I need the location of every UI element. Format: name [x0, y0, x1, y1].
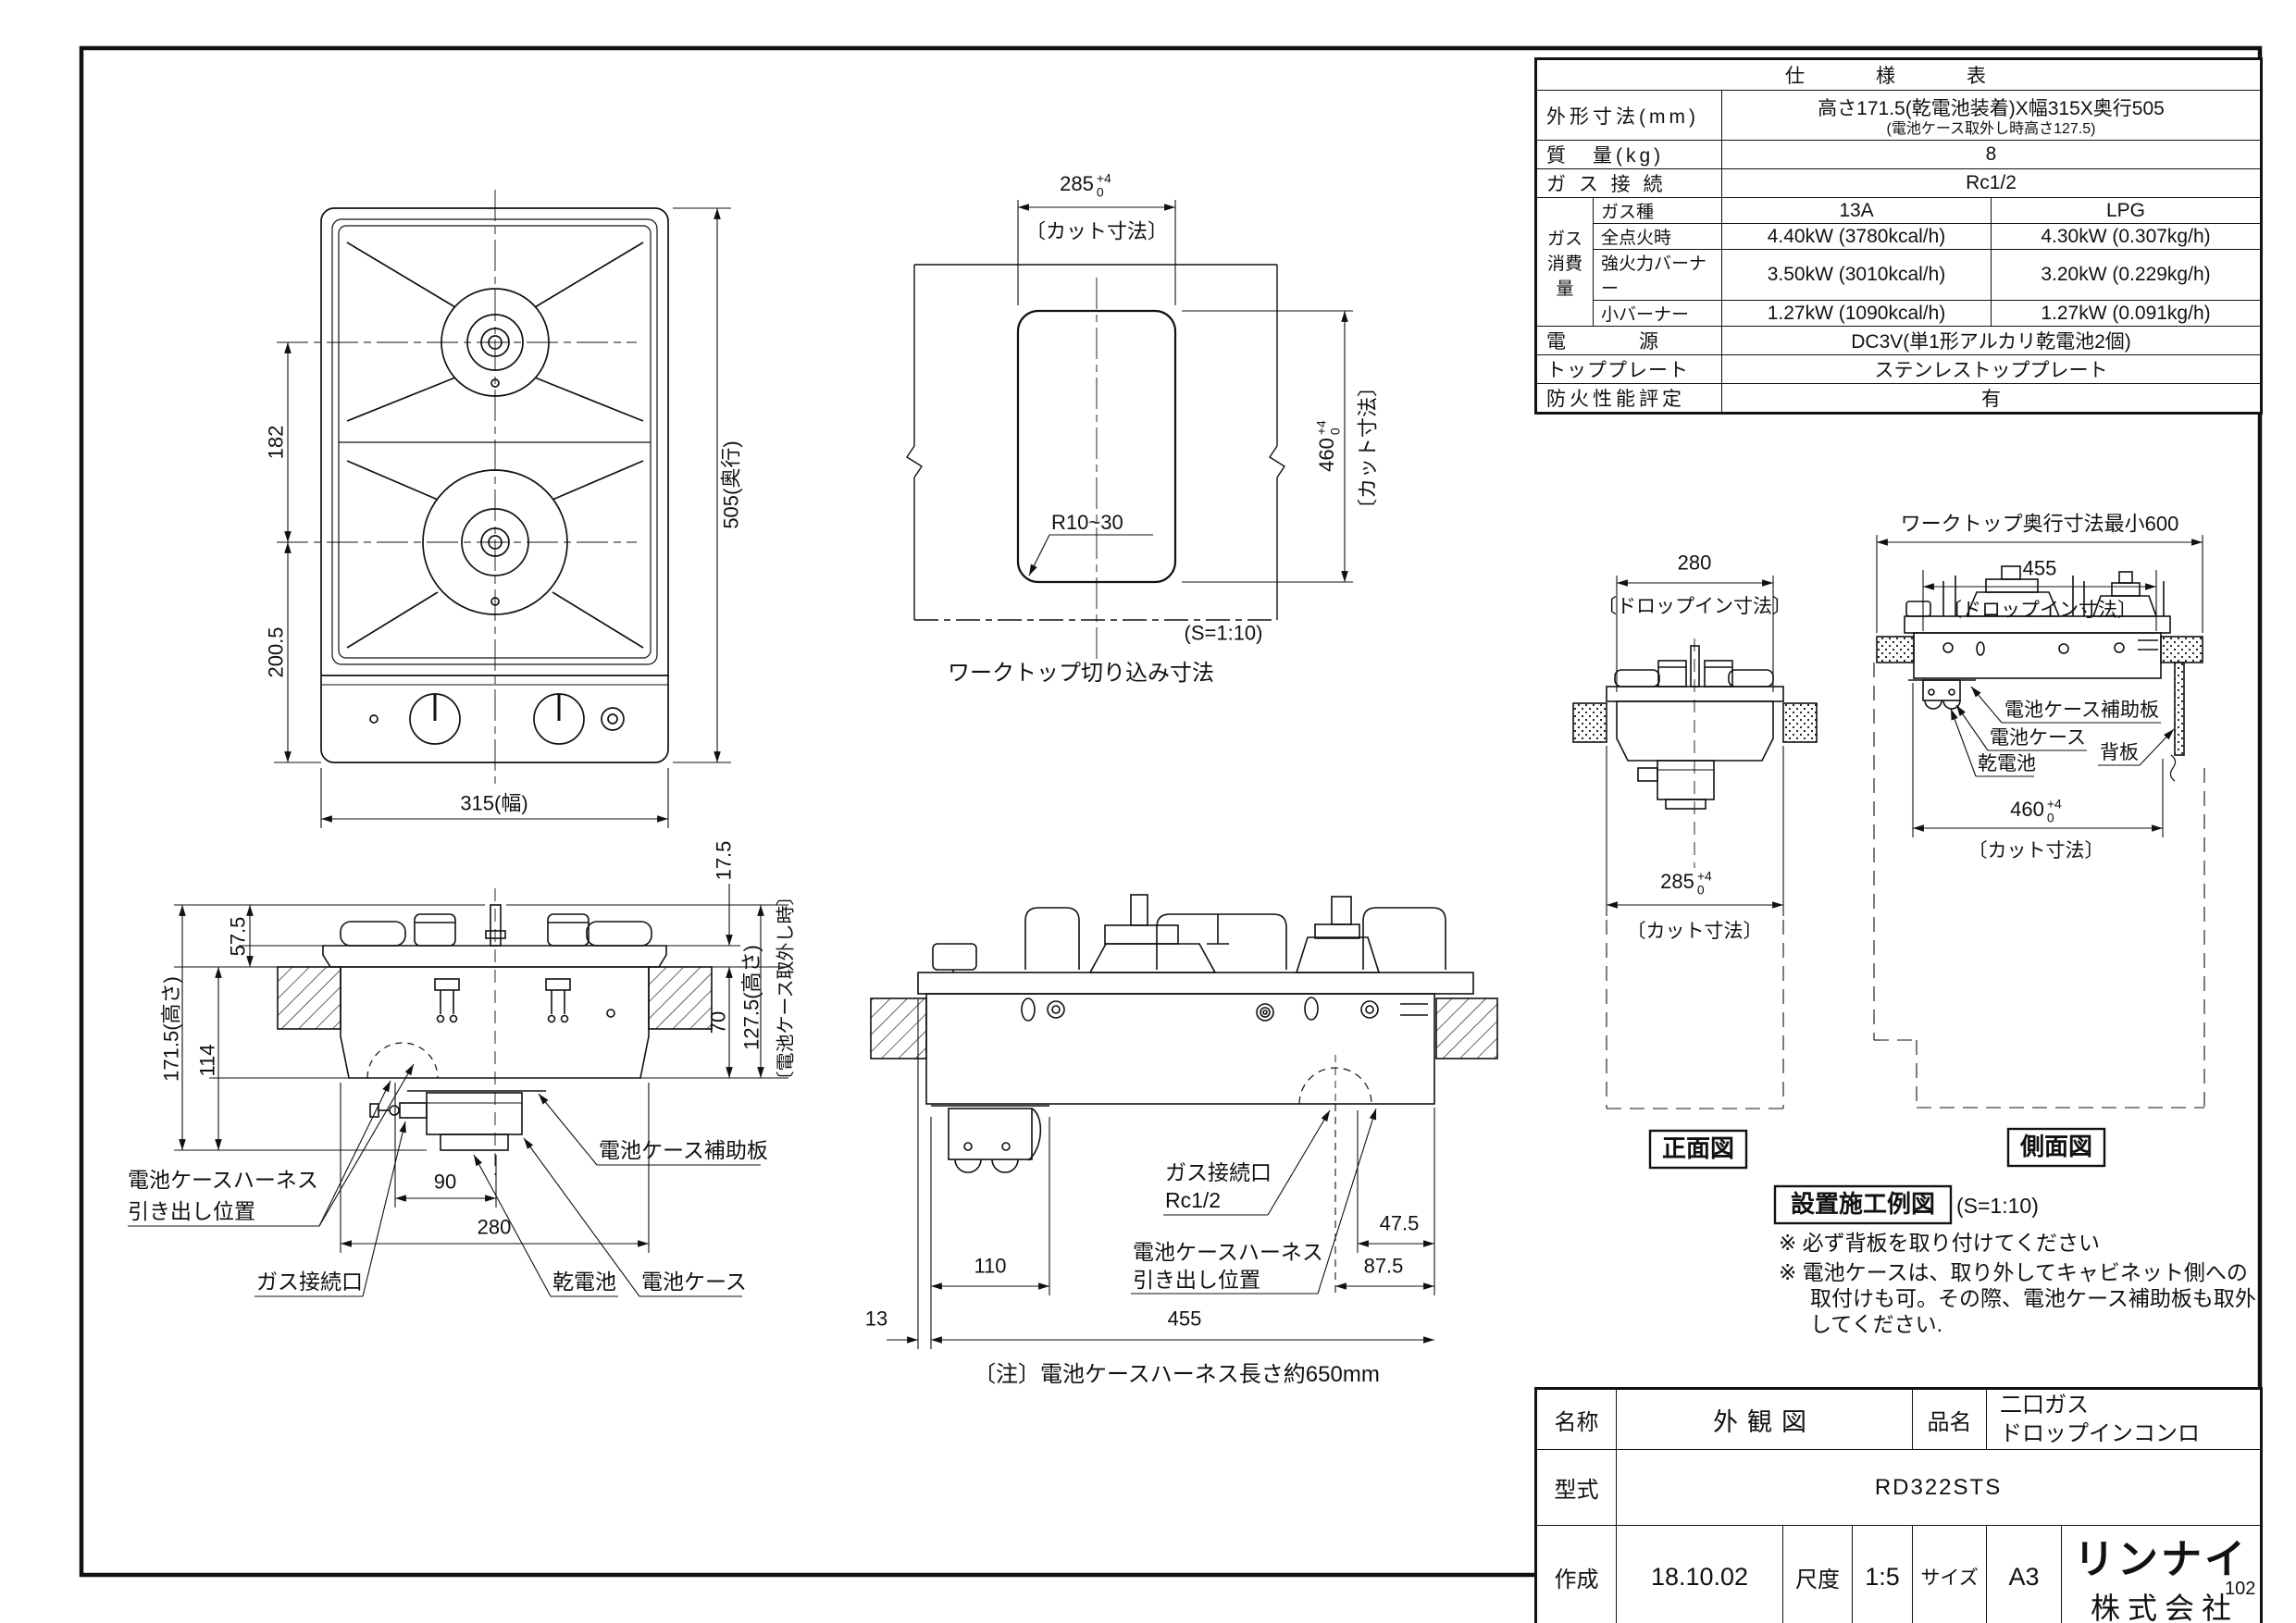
felev-dim-17-5: 17.5	[712, 841, 735, 881]
install-side-dim-455: 455	[2023, 556, 2057, 579]
felev-label-battery: 乾電池	[552, 1270, 616, 1294]
title-product-value: 二口ガス ドロップインコンロ	[1987, 1389, 2262, 1450]
spec-row-lpg: 1.27kW (0.091kg/h)	[1992, 301, 2262, 327]
install-side-dim-460-note: 〔カット寸法〕	[1968, 840, 2104, 862]
spec-gas-conn-label: ガ ス 接 続	[1536, 169, 1722, 198]
cutout-dim-height: 460+40	[1314, 420, 1341, 472]
selev-dim-47-5: 47.5	[1380, 1211, 1420, 1234]
install-side-label-case: 電池ケース	[1990, 727, 2086, 750]
install-side-dim-460: 460+40	[2010, 797, 2062, 824]
install-side-label-back: 背板	[2100, 742, 2139, 764]
felev-label-harness-2: 引き出し位置	[128, 1199, 255, 1223]
felev-label-gas: ガス接続口	[256, 1270, 363, 1294]
front-elev-linework	[278, 888, 712, 1175]
spec-outer-dim-label: 外形寸法(mm)	[1536, 91, 1722, 141]
title-company: リンナイ株式会社	[2062, 1526, 2262, 1623]
selev-note: 〔注〕電池ケースハーネス長さ約650mm	[974, 1362, 1380, 1388]
install-side-dim-600: ワークトップ奥行寸法最小600	[1901, 512, 2179, 535]
spec-row-13a: 1.27kW (1090kcal/h)	[1722, 301, 1992, 327]
spec-row-label: 小バーナー	[1594, 301, 1722, 327]
plan-dim-front: 200.5	[264, 626, 287, 677]
felev-dim-57-5: 57.5	[226, 917, 249, 957]
felev-label-aux: 電池ケース補助板	[599, 1138, 768, 1162]
selev-dim-87-5: 87.5	[1364, 1254, 1404, 1277]
spec-consumption-label: ガス 消費量	[1536, 198, 1594, 327]
install-side-dim-455-note: 〔ドロップイン寸法〕	[1942, 600, 2137, 622]
selev-label-harness-2: 引き出し位置	[1133, 1268, 1260, 1292]
cutout-radius: R10~30	[1051, 511, 1123, 534]
felev-dim-70: 70	[706, 1011, 729, 1034]
title-date-value: 18.10.02	[1617, 1526, 1783, 1623]
spec-weight-label: 質 量(kg)	[1536, 141, 1722, 169]
selev-dim-110: 110	[974, 1254, 1006, 1277]
title-scale-value: 1:5	[1853, 1526, 1913, 1623]
drawing-sheet: 505(奥行) 315(幅) 182 200.5 285+40 〔カット寸法〕 …	[0, 0, 2296, 1623]
cutout-scale: (S=1:10)	[1185, 621, 1263, 644]
title-name-label: 名称	[1536, 1389, 1617, 1450]
install-front-caption: 正面図	[1662, 1135, 1734, 1163]
plan-dim-width: 315(幅)	[460, 791, 527, 814]
install-front-dim-285-note: 〔カット寸法〕	[1627, 921, 1763, 943]
spec-gas-type-lpg: LPG	[1992, 198, 2262, 224]
cutout-linework	[907, 265, 1285, 661]
install-example-title: 設置施工例図	[1791, 1191, 1935, 1219]
plan-dim-pitch: 182	[264, 426, 287, 460]
spec-gas-conn-value: Rc1/2	[1722, 169, 2262, 198]
felev-dim-90: 90	[434, 1170, 456, 1193]
selev-label-gas-2: Rc1/2	[1165, 1188, 1221, 1212]
install-note-1: ※ 必ず背板を取り付けてください	[1779, 1231, 2100, 1255]
cutout-caption: ワークトップ切り込み寸法	[948, 661, 1214, 687]
plan-dim-depth: 505(奥行)	[719, 440, 742, 528]
felev-dim-114: 114	[195, 1044, 218, 1076]
felev-label-harness-1: 電池ケースハーネス	[128, 1168, 318, 1192]
page-number: 102	[2225, 1579, 2255, 1600]
selev-label-gas-1: ガス接続口	[1165, 1160, 1272, 1184]
title-date-label: 作成	[1536, 1526, 1617, 1623]
install-note-4: してください.	[1810, 1312, 1942, 1336]
cutout-dim-width-note: 〔カット寸法〕	[1025, 219, 1168, 242]
felev-dim-280: 280	[478, 1215, 512, 1238]
spec-outer-dim-value: 高さ171.5(乾電池装着)X幅315X奥行505 (電池ケース取外し時高さ12…	[1722, 91, 2262, 141]
felev-dim-127-5: 127.5(高さ)	[739, 945, 763, 1050]
selev-label-harness-1: 電池ケースハーネス	[1133, 1240, 1323, 1264]
side-elev-dimensions	[887, 999, 1434, 1349]
spec-table: 仕 様 表 外形寸法(mm) 高さ171.5(乾電池装着)X幅315X奥行505…	[1534, 57, 2263, 415]
install-side-caption: 側面図	[2020, 1134, 2092, 1161]
spec-weight-value: 8	[1722, 141, 2262, 169]
side-elev-linework	[871, 895, 1497, 1172]
title-size-label: サイズ	[1913, 1526, 1987, 1623]
selev-dim-455: 455	[1168, 1307, 1202, 1330]
spec-row-lpg: 3.20kW (0.229kg/h)	[1992, 250, 2262, 301]
install-front-dim-280-note: 〔ドロップイン寸法〕	[1597, 596, 1792, 618]
spec-power-value: DC3V(単1形アルカリ乾電池2個)	[1722, 327, 2262, 355]
spec-row-label: 強火力バーナー	[1594, 250, 1722, 301]
spec-row-13a: 4.40kW (3780kcal/h)	[1722, 224, 1992, 250]
install-side-label-battery: 乾電池	[1978, 753, 2036, 775]
felev-dim-171-5: 171.5(高さ)	[159, 976, 182, 1082]
spec-gas-type-label: ガス種	[1594, 198, 1722, 224]
felev-label-case: 電池ケース	[641, 1270, 747, 1294]
title-model-value: RD322STS	[1617, 1450, 2262, 1526]
title-name-value: 外観図	[1617, 1389, 1913, 1450]
spec-fire-rating-label: 防火性能評定	[1536, 384, 1722, 414]
spec-title: 仕 様 表	[1536, 59, 2262, 91]
install-front-dimensions	[1607, 576, 1783, 1109]
spec-row-label: 全点火時	[1594, 224, 1722, 250]
spec-power-label: 電 源	[1536, 327, 1722, 355]
install-example-scale: (S=1:10)	[1956, 1194, 2039, 1218]
title-model-label: 型式	[1536, 1450, 1617, 1526]
title-scale-label: 尺度	[1783, 1526, 1853, 1623]
install-front-dim-280: 280	[1678, 551, 1712, 574]
plan-view-linework	[277, 190, 668, 785]
title-size-value: A3	[1987, 1526, 2062, 1623]
spec-row-13a: 3.50kW (3010kcal/h)	[1722, 250, 1992, 301]
spec-row-lpg: 4.30kW (0.307kg/h)	[1992, 224, 2262, 250]
install-note-2: ※ 電池ケースは、取り外してキャビネット側への	[1779, 1260, 2248, 1284]
spec-fire-rating-value: 有	[1722, 384, 2262, 414]
plan-view-dimensions	[274, 208, 731, 828]
spec-top-plate-label: トッププレート	[1536, 355, 1722, 384]
felev-dim-127-5-note: 〔電池ケース取外し時〕	[776, 887, 798, 1090]
cutout-dim-width: 285+40	[1060, 171, 1111, 198]
title-product-label: 品名	[1913, 1389, 1987, 1450]
install-front-dim-285: 285+40	[1660, 869, 1712, 896]
install-note-3: 取付けも可。その際、電池ケース補助板も取外	[1810, 1286, 2256, 1310]
spec-gas-type-13a: 13A	[1722, 198, 1992, 224]
install-side-label-aux: 電池ケース補助板	[2004, 700, 2159, 722]
spec-top-plate-value: ステンレストッププレート	[1722, 355, 2262, 384]
selev-dim-13: 13	[865, 1307, 887, 1330]
rinnai-logo: リンナイ	[2074, 1537, 2248, 1582]
install-front-linework	[1573, 638, 1817, 868]
title-block: 名称 外観図 品名 二口ガス ドロップインコンロ 型式 RD322STS 作成 …	[1534, 1387, 2263, 1623]
cutout-dim-height-note: 〔カット寸法〕	[1356, 377, 1379, 519]
